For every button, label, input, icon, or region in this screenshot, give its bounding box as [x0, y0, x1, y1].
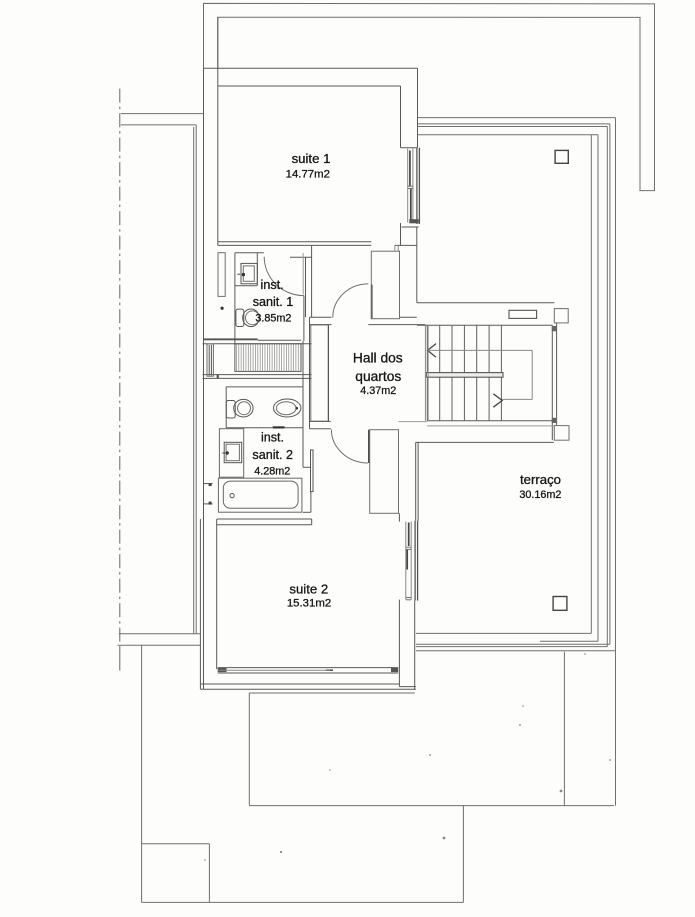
svg-text:14.77m2: 14.77m2: [286, 169, 330, 181]
svg-text:30.16m2: 30.16m2: [519, 489, 561, 501]
svg-text:4.28m2: 4.28m2: [254, 465, 290, 477]
svg-text:4.37m2: 4.37m2: [360, 385, 396, 397]
svg-text:sanit. 1: sanit. 1: [253, 295, 294, 309]
svg-text:inst.: inst.: [261, 430, 284, 444]
svg-text:terraço: terraço: [520, 472, 561, 487]
svg-text:15.31m2: 15.31m2: [287, 598, 331, 610]
svg-text:suite 1: suite 1: [292, 151, 331, 166]
svg-text:Hall dos: Hall dos: [353, 350, 403, 365]
svg-text:quartos: quartos: [355, 369, 401, 384]
svg-text:inst.: inst.: [261, 278, 284, 292]
svg-text:sanit. 2: sanit. 2: [252, 448, 293, 462]
svg-text:3.85m2: 3.85m2: [255, 312, 291, 324]
svg-text:suite 2: suite 2: [289, 581, 328, 596]
